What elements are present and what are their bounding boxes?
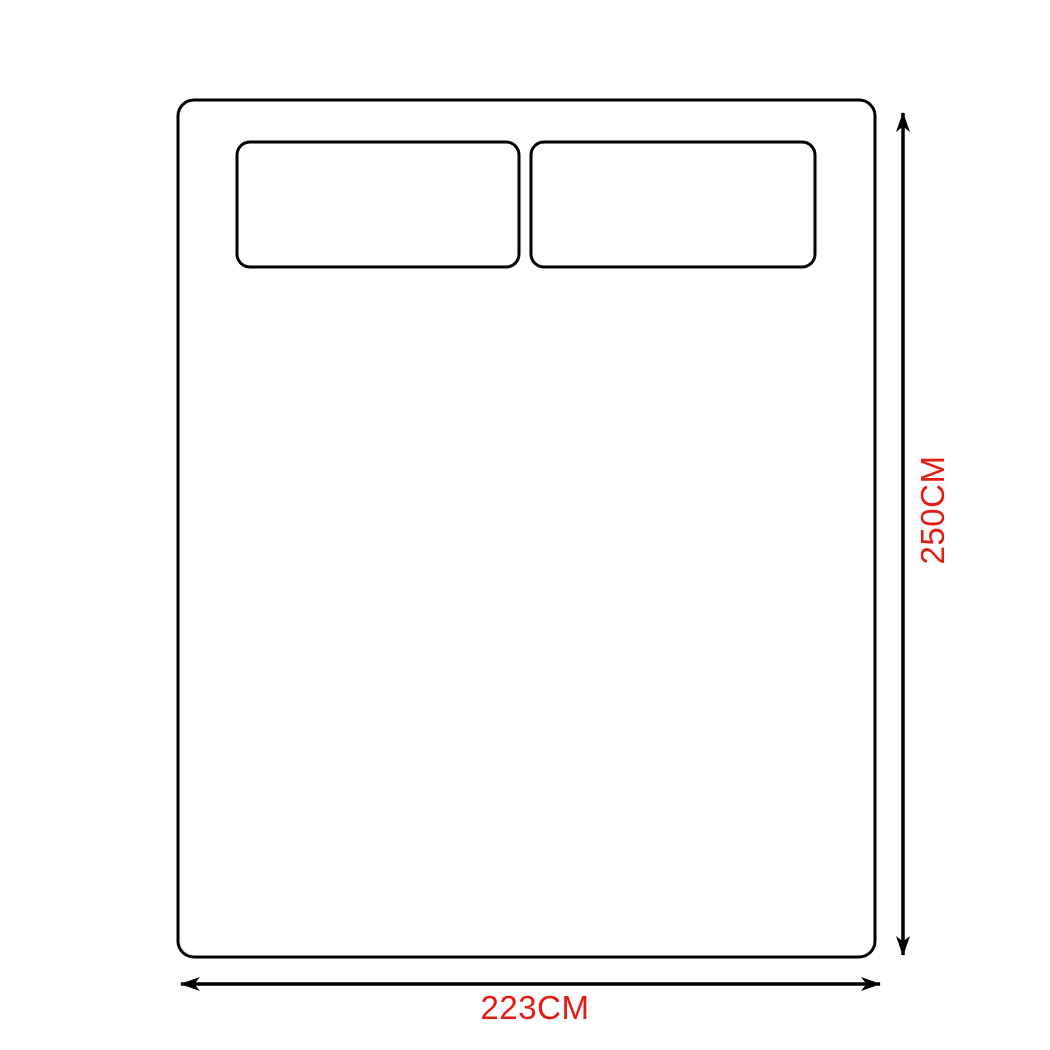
- diagram-drawing: [0, 0, 1050, 1050]
- pillow-left: [237, 142, 519, 267]
- dimension-diagram: 250CM 223CM: [0, 0, 1050, 1050]
- height-dimension-label: 250CM: [914, 456, 952, 565]
- bed-outline: [178, 100, 875, 957]
- width-dimension-label: 223CM: [481, 989, 590, 1027]
- pillow-right: [531, 142, 815, 267]
